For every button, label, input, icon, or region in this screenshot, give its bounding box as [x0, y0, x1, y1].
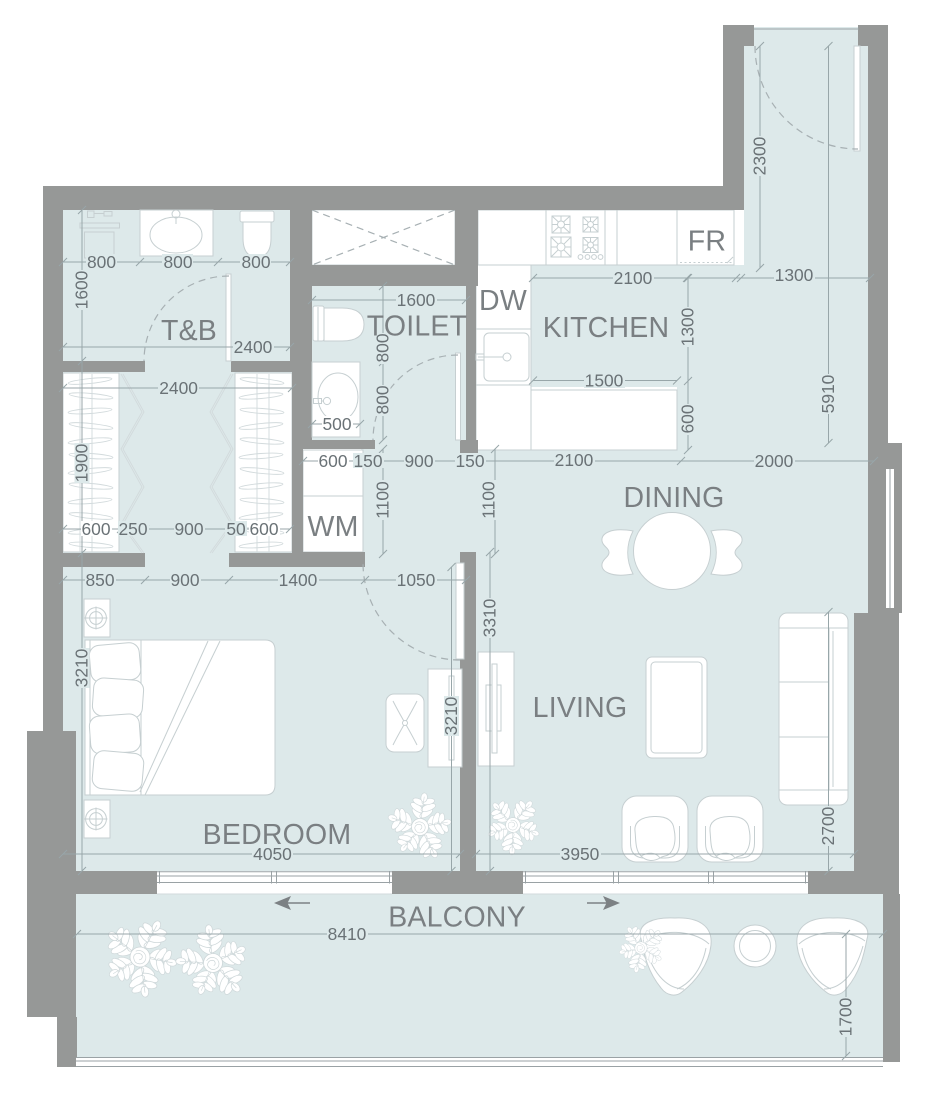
svg-text:FR: FR	[688, 226, 726, 258]
svg-text:3210: 3210	[72, 649, 92, 688]
svg-text:8410: 8410	[328, 924, 367, 944]
svg-text:1900: 1900	[72, 444, 92, 483]
svg-text:1100: 1100	[373, 481, 393, 518]
svg-text:800: 800	[163, 252, 192, 272]
svg-text:250: 250	[118, 519, 147, 539]
svg-text:1600: 1600	[397, 290, 436, 310]
svg-text:BALCONY: BALCONY	[388, 902, 526, 934]
svg-text:1500: 1500	[585, 371, 624, 391]
svg-text:2000: 2000	[755, 451, 794, 471]
svg-text:TOILET: TOILET	[367, 311, 467, 343]
svg-text:2100: 2100	[614, 268, 653, 288]
svg-text:600: 600	[249, 519, 278, 539]
svg-text:800: 800	[87, 252, 116, 272]
svg-text:900: 900	[404, 451, 433, 471]
svg-text:1100: 1100	[479, 481, 499, 518]
svg-text:150: 150	[353, 451, 382, 471]
svg-text:600: 600	[318, 451, 347, 471]
svg-text:3210: 3210	[441, 697, 461, 736]
svg-text:KITCHEN: KITCHEN	[543, 312, 670, 344]
svg-text:BEDROOM: BEDROOM	[203, 819, 352, 851]
svg-text:1400: 1400	[279, 570, 318, 590]
svg-text:1050: 1050	[397, 570, 436, 590]
svg-text:2700: 2700	[818, 807, 838, 846]
svg-text:2300: 2300	[750, 137, 770, 176]
svg-text:2400: 2400	[159, 378, 198, 398]
svg-text:1300: 1300	[775, 265, 814, 285]
svg-text:150: 150	[455, 451, 484, 471]
svg-text:2100: 2100	[555, 450, 594, 470]
svg-text:T&B: T&B	[161, 315, 217, 347]
svg-text:DW: DW	[479, 285, 527, 317]
svg-text:1600: 1600	[72, 271, 92, 310]
svg-text:800: 800	[373, 385, 393, 414]
svg-text:500: 500	[322, 414, 351, 434]
svg-text:600: 600	[81, 519, 110, 539]
svg-text:WM: WM	[307, 511, 358, 543]
svg-text:850: 850	[85, 570, 114, 590]
svg-text:900: 900	[170, 570, 199, 590]
svg-text:800: 800	[241, 252, 270, 272]
svg-text:600: 600	[678, 404, 698, 433]
svg-text:LIVING: LIVING	[533, 692, 628, 724]
svg-text:DINING: DINING	[624, 482, 725, 514]
svg-text:5910: 5910	[818, 375, 838, 414]
svg-text:3950: 3950	[561, 844, 600, 864]
svg-text:3310: 3310	[480, 599, 500, 638]
svg-text:50: 50	[226, 519, 245, 539]
svg-text:2400: 2400	[234, 337, 273, 357]
svg-text:900: 900	[174, 519, 203, 539]
svg-text:1700: 1700	[836, 998, 856, 1037]
svg-text:1300: 1300	[678, 308, 698, 347]
